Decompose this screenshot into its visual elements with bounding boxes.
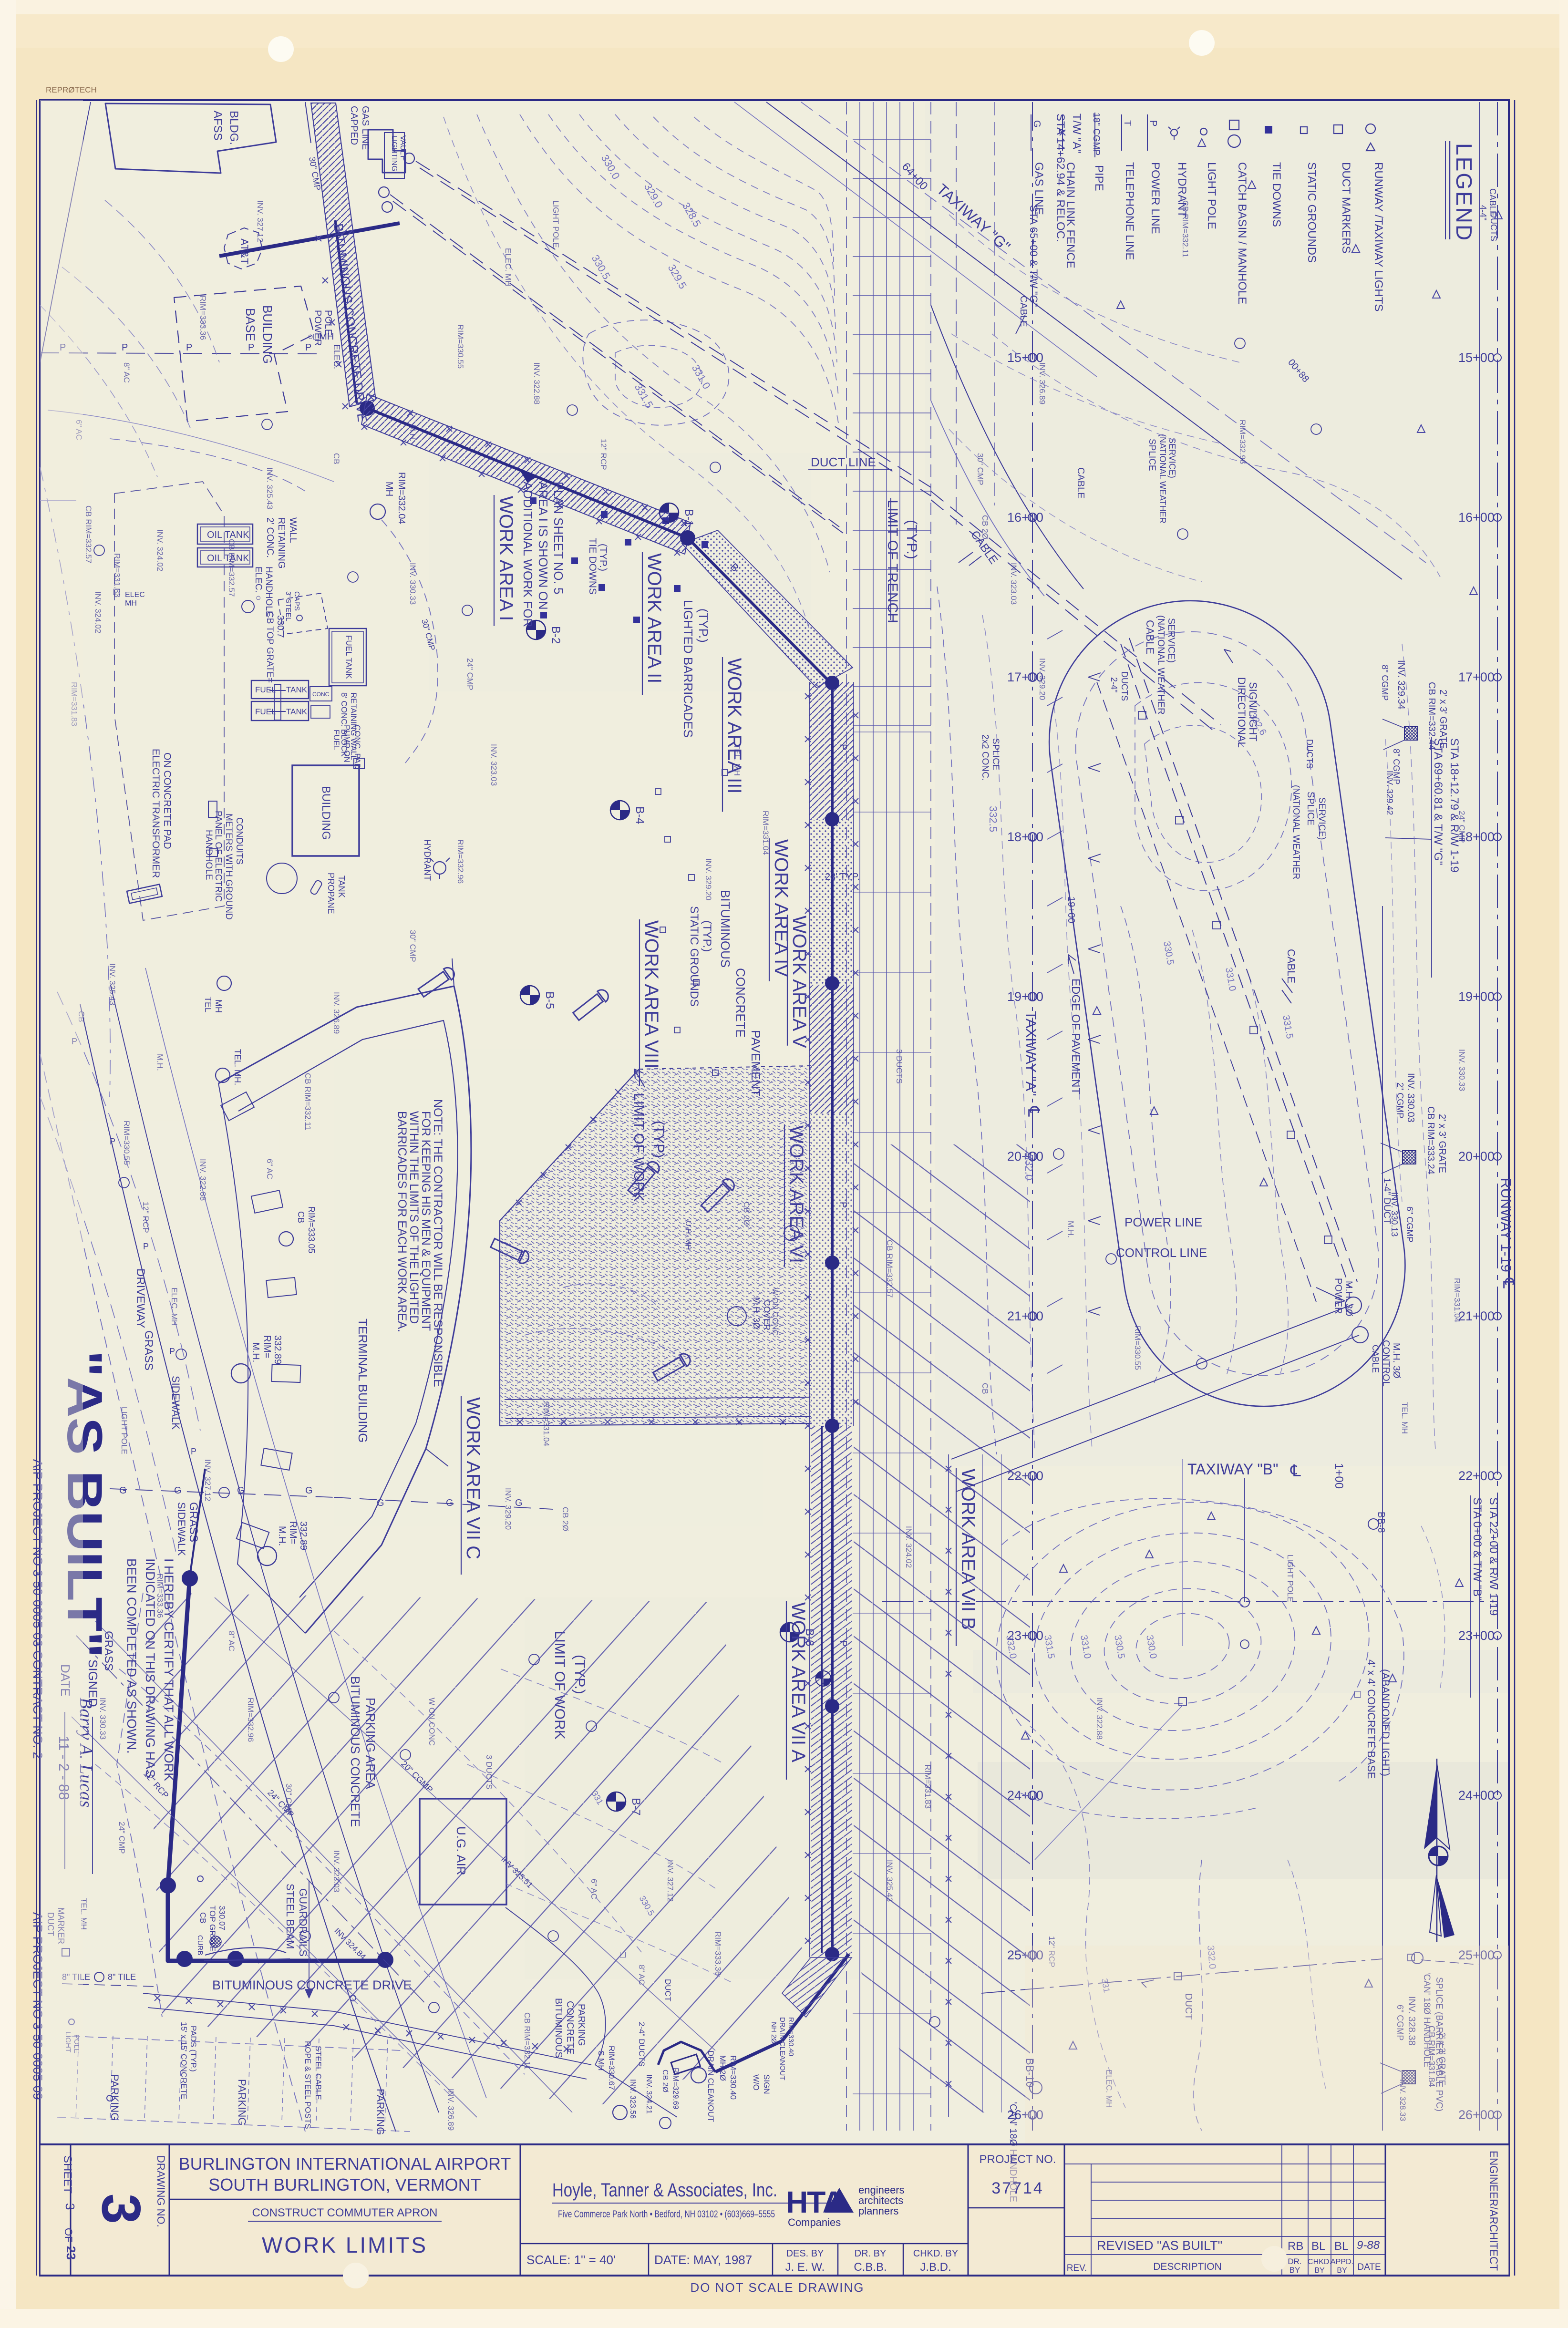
svg-text:CABLE: CABLE bbox=[1371, 1345, 1380, 1373]
svg-text:(TYP): (TYP) bbox=[651, 1121, 667, 1158]
svg-text:19+00: 19+00 bbox=[1007, 989, 1043, 1004]
svg-text:DRAIN CLEANOUT: DRAIN CLEANOUT bbox=[706, 2050, 715, 2122]
svg-text:DUCT: DUCT bbox=[663, 1979, 672, 2001]
svg-text:2' x 3' GRATE: 2' x 3' GRATE bbox=[1438, 690, 1448, 749]
svg-text:BITUMINOUS CONCRETE: BITUMINOUS CONCRETE bbox=[348, 1676, 362, 1827]
svg-text:6" CGMP: 6" CGMP bbox=[1405, 1206, 1414, 1242]
svg-text:(NATIONAL WEATHER: (NATIONAL WEATHER bbox=[1155, 615, 1166, 715]
svg-text:BEEN COMPLETED AS SHOWN.: BEEN COMPLETED AS SHOWN. bbox=[124, 1558, 139, 1754]
svg-text:INV. 326.89: INV. 326.89 bbox=[446, 2089, 455, 2131]
svg-text:POWER: POWER bbox=[312, 310, 323, 346]
svg-text:GAS LINE: GAS LINE bbox=[360, 106, 371, 150]
svg-text:WORK AREA VII C: WORK AREA VII C bbox=[463, 1397, 484, 1559]
svg-text:W/O: W/O bbox=[752, 2074, 761, 2091]
svg-text:Five Commerce Park North • Bed: Five Commerce Park North • Bedford, NH 0… bbox=[558, 2209, 775, 2220]
svg-text:GUARDRAILS: GUARDRAILS bbox=[297, 1888, 309, 1957]
svg-text:ON CONCRETE PAD: ON CONCRETE PAD bbox=[162, 752, 173, 849]
svg-text:8" AC: 8" AC bbox=[122, 362, 131, 383]
svg-text:CONDUITS: CONDUITS bbox=[234, 817, 244, 865]
svg-text:WORK AREA VIII: WORK AREA VIII bbox=[641, 920, 662, 1069]
svg-text:CB: CB bbox=[198, 1912, 207, 1924]
svg-text:332.89: 332.89 bbox=[272, 1335, 283, 1364]
svg-text:B-4: B-4 bbox=[633, 806, 646, 824]
svg-text:DUCTS: DUCTS bbox=[1305, 739, 1314, 769]
svg-text:18+00: 18+00 bbox=[1007, 830, 1043, 844]
svg-text:CONC. PAD: CONC. PAD bbox=[353, 725, 362, 769]
svg-text:CB 2Ø: CB 2Ø bbox=[661, 2070, 669, 2092]
svg-text:DR. BY: DR. BY bbox=[855, 2248, 887, 2259]
svg-text:24" CMP: 24" CMP bbox=[465, 658, 475, 690]
svg-text:TEL. MH: TEL. MH bbox=[1400, 1402, 1409, 1434]
svg-text:BASE: BASE bbox=[243, 308, 258, 341]
svg-text:INV. 329.20: INV. 329.20 bbox=[504, 1488, 513, 1530]
svg-text:37714: 37714 bbox=[991, 2179, 1044, 2197]
svg-text:STATIC GROUNDS: STATIC GROUNDS bbox=[688, 906, 701, 1007]
svg-text:WORK AREA I: WORK AREA I bbox=[495, 496, 516, 621]
svg-text:30" CMP: 30" CMP bbox=[976, 453, 985, 485]
svg-text:RETAINING: RETAINING bbox=[276, 517, 287, 568]
svg-text:INV. 327.12: INV. 327.12 bbox=[256, 200, 265, 242]
svg-text:BARRICADES FOR EACH WORK AREA.: BARRICADES FOR EACH WORK AREA. bbox=[395, 1111, 409, 1332]
svg-text:PADS (TYP.): PADS (TYP.) bbox=[189, 2026, 198, 2072]
svg-text:LIGHT POLE: LIGHT POLE bbox=[551, 200, 560, 248]
svg-text:SERVICE): SERVICE) bbox=[1167, 438, 1177, 478]
svg-text:CABLE: CABLE bbox=[1018, 296, 1029, 327]
svg-text:RIM=330.40: RIM=330.40 bbox=[729, 2055, 738, 2100]
svg-text:P: P bbox=[838, 744, 848, 750]
svg-text:M.H. 3Ø: M.H. 3Ø bbox=[1343, 1281, 1354, 1316]
svg-text:RIM=330.55: RIM=330.55 bbox=[122, 1121, 131, 1165]
svg-text:19+00: 19+00 bbox=[1458, 989, 1495, 1004]
svg-text:CB 2Ø: CB 2Ø bbox=[561, 1507, 570, 1531]
svg-text:CHKD. BY: CHKD. BY bbox=[913, 2248, 958, 2259]
svg-text:POWER LINE: POWER LINE bbox=[1124, 1215, 1202, 1229]
svg-text:CONCRETE: CONCRETE bbox=[565, 2001, 575, 2054]
svg-text:CB RIM=332.44: CB RIM=332.44 bbox=[1426, 682, 1437, 750]
svg-text:CB RIM=332.57: CB RIM=332.57 bbox=[885, 1240, 894, 1298]
svg-text:P: P bbox=[305, 342, 311, 353]
svg-text:INV. 323.56: INV. 323.56 bbox=[629, 2079, 637, 2119]
svg-text:CB: CB bbox=[332, 453, 341, 464]
svg-text:2' CONC.: 2' CONC. bbox=[265, 517, 275, 558]
svg-text:CONSTRUCT COMMUTER APRON: CONSTRUCT COMMUTER APRON bbox=[252, 2206, 438, 2219]
svg-text:CB RIM=332.11: CB RIM=332.11 bbox=[303, 1073, 312, 1130]
svg-text:8" CGMP: 8" CGMP bbox=[1392, 749, 1401, 784]
svg-text:PROJECT NO.: PROJECT NO. bbox=[980, 2153, 1056, 2166]
svg-text:REVISED "AS BUILT": REVISED "AS BUILT" bbox=[1097, 2238, 1222, 2253]
svg-text:STA 22+00 & R/W 1-19: STA 22+00 & R/W 1-19 bbox=[1487, 1497, 1500, 1616]
svg-text:12" RCP: 12" RCP bbox=[141, 1202, 150, 1233]
svg-text:G: G bbox=[377, 1498, 384, 1508]
svg-text:8" AC: 8" AC bbox=[227, 1631, 236, 1651]
svg-text:AREA I IS SHOWN ON: AREA I IS SHOWN ON bbox=[536, 482, 550, 610]
svg-text:STA 0+00 & T/W "B": STA 0+00 & T/W "B" bbox=[1471, 1497, 1484, 1601]
svg-text:SPLICE: SPLICE bbox=[990, 738, 1001, 771]
svg-text:330.07: 330.07 bbox=[217, 1906, 227, 1930]
svg-text:P: P bbox=[169, 1347, 175, 1356]
svg-text:HANDHOLE: HANDHOLE bbox=[204, 830, 214, 880]
svg-text:CB: CB bbox=[296, 1211, 306, 1223]
svg-text:SOUTH BURLINGTON, VERMONT: SOUTH BURLINGTON, VERMONT bbox=[208, 2175, 481, 2194]
svg-text:RIM=333.36: RIM=333.36 bbox=[198, 296, 207, 340]
svg-text:INV. 322.88: INV. 322.88 bbox=[532, 362, 541, 404]
svg-text:℄: ℄ bbox=[1290, 1462, 1301, 1480]
svg-text:RIM=331.04: RIM=331.04 bbox=[1453, 1278, 1462, 1322]
svg-text:G: G bbox=[515, 1498, 523, 1508]
svg-text:TANK: TANK bbox=[286, 707, 308, 716]
svg-text:STA 69+60.81 & T/W "G": STA 69+60.81 & T/W "G" bbox=[1432, 738, 1444, 865]
svg-text:PIPE: PIPE bbox=[1093, 165, 1105, 191]
svg-text:CB RIM=332.57: CB RIM=332.57 bbox=[84, 505, 93, 563]
svg-text:CAPPED: CAPPED bbox=[349, 106, 359, 145]
svg-text:23: 23 bbox=[64, 2246, 78, 2260]
svg-text:INV. 323.03: INV. 323.03 bbox=[489, 744, 498, 786]
svg-text:PARKING: PARKING bbox=[576, 2004, 587, 2046]
svg-text:TANK: TANK bbox=[337, 876, 346, 898]
svg-text:DESCRIPTION: DESCRIPTION bbox=[1153, 2261, 1222, 2272]
svg-text:CONC: CONC bbox=[312, 691, 330, 698]
svg-text:FUEL TANK: FUEL TANK bbox=[344, 635, 353, 679]
svg-text:LIMIT OF TRENCH: LIMIT OF TRENCH bbox=[885, 500, 900, 623]
svg-text:RIM=333.05: RIM=333.05 bbox=[307, 1206, 316, 1254]
svg-text:RUNWAY /TAXIWAY LIGHTS: RUNWAY /TAXIWAY LIGHTS bbox=[1372, 162, 1385, 311]
svg-text:TIE DOWNS: TIE DOWNS bbox=[587, 538, 598, 595]
svg-text:PARKING: PARKING bbox=[236, 2079, 248, 2125]
svg-text:MH: MH bbox=[125, 599, 137, 608]
svg-text:BITUMINOUS: BITUMINOUS bbox=[718, 890, 732, 968]
svg-text:TOP GRATE: TOP GRATE bbox=[208, 1906, 217, 1951]
svg-text:CB 2Ø: CB 2Ø bbox=[742, 1202, 751, 1226]
svg-text:M.H. 3Ø: M.H. 3Ø bbox=[752, 1297, 761, 1329]
svg-text:(ABANDONED LIGHT): (ABANDONED LIGHT) bbox=[1380, 1669, 1392, 1776]
svg-text:TIE DOWNS: TIE DOWNS bbox=[1270, 162, 1283, 227]
svg-text:INV. 326.89: INV. 326.89 bbox=[1038, 362, 1047, 404]
svg-text:DIRECTIONAL: DIRECTIONAL bbox=[1236, 677, 1248, 748]
svg-text:G: G bbox=[119, 1485, 127, 1496]
svg-text:BUILDING: BUILDING bbox=[260, 305, 275, 364]
svg-text:RIM=331.04: RIM=331.04 bbox=[761, 811, 770, 855]
svg-text:LIGHT POLE: LIGHT POLE bbox=[120, 1407, 129, 1454]
svg-text:LIGHT POLE: LIGHT POLE bbox=[1205, 162, 1218, 229]
svg-text:P: P bbox=[191, 1447, 196, 1456]
svg-text:T: T bbox=[1122, 120, 1133, 126]
svg-text:ADDITIONAL WORK FOR: ADDITIONAL WORK FOR bbox=[521, 482, 535, 627]
svg-text:BLDG.: BLDG. bbox=[227, 111, 240, 145]
svg-text:INV. 323.03: INV. 323.03 bbox=[1009, 563, 1018, 605]
svg-text:G: G bbox=[237, 1485, 245, 1496]
svg-text:CONTROL LINE: CONTROL LINE bbox=[1116, 1246, 1207, 1260]
svg-text:330.7: 330.7 bbox=[275, 615, 285, 638]
svg-text:ENGINEER/ARCHITECT: ENGINEER/ARCHITECT bbox=[1487, 2151, 1500, 2271]
svg-text:3 DUCTS: 3 DUCTS bbox=[895, 1049, 904, 1084]
svg-text:PROPANE: PROPANE bbox=[326, 873, 336, 914]
svg-text:M.H.: M.H. bbox=[1066, 1221, 1075, 1238]
svg-text:SHEET: SHEET bbox=[61, 2155, 74, 2194]
svg-text:4' x 4' CONCRETE BASE: 4' x 4' CONCRETE BASE bbox=[1365, 1659, 1377, 1779]
svg-text:P: P bbox=[122, 342, 128, 353]
svg-text:ROPE & STEEL POSTS: ROPE & STEEL POSTS bbox=[303, 2041, 312, 2129]
svg-text:30" CMP: 30" CMP bbox=[408, 930, 417, 962]
svg-text:M.H.: M.H. bbox=[155, 1054, 165, 1071]
svg-text:RIM=331.04: RIM=331.04 bbox=[542, 1402, 551, 1446]
svg-text:8" TILE: 8" TILE bbox=[108, 1972, 136, 1982]
svg-text:332.5: 332.5 bbox=[987, 806, 999, 832]
svg-text:MH: MH bbox=[214, 999, 223, 1013]
svg-text:G: G bbox=[446, 1498, 454, 1508]
svg-text:MH: MH bbox=[384, 482, 394, 496]
svg-text:15+00: 15+00 bbox=[1458, 350, 1495, 365]
svg-text:GRASS: GRASS bbox=[142, 1330, 155, 1370]
svg-text:STA 18+12.79 & R/W 1-19: STA 18+12.79 & R/W 1-19 bbox=[1448, 738, 1461, 873]
svg-text:J. E. W.: J. E. W. bbox=[785, 2261, 825, 2274]
svg-text:ELEC. MH: ELEC. MH bbox=[504, 248, 513, 286]
svg-text:RUNWAY 1-19: RUNWAY 1-19 bbox=[1498, 1178, 1514, 1272]
svg-text:STATIC GROUNDS: STATIC GROUNDS bbox=[1305, 162, 1318, 263]
svg-text:4-4": 4-4" bbox=[1478, 205, 1488, 220]
svg-text:FOR KEEPING HIS MEN & EQUIPMEN: FOR KEEPING HIS MEN & EQUIPMENT bbox=[419, 1111, 433, 1331]
svg-text:STA 14+62.94 & RELOC.: STA 14+62.94 & RELOC. bbox=[1054, 113, 1067, 242]
svg-text:METERS WITH GROUND: METERS WITH GROUND bbox=[224, 814, 234, 920]
svg-text:TEL. MH: TEL. MH bbox=[732, 744, 742, 776]
svg-text:RIM=331.83: RIM=331.83 bbox=[923, 1764, 932, 1809]
svg-text:AT&T: AT&T bbox=[238, 238, 250, 265]
svg-text:CABLE: CABLE bbox=[1285, 949, 1297, 983]
svg-text:I HEREBY CERTIFY THAT ALL WORK: I HEREBY CERTIFY THAT ALL WORK bbox=[162, 1558, 176, 1781]
svg-text:SIGN: SIGN bbox=[762, 2074, 771, 2094]
svg-text:12" RCP: 12" RCP bbox=[599, 439, 608, 470]
svg-text:ELEC: ELEC bbox=[125, 591, 145, 599]
svg-text:3: 3 bbox=[63, 2203, 77, 2210]
svg-text:P: P bbox=[248, 342, 254, 353]
svg-text:Companies: Companies bbox=[788, 2216, 841, 2228]
svg-text:(NATIONAL WEATHER: (NATIONAL WEATHER bbox=[1158, 434, 1167, 524]
svg-text:INV. 326.89: INV. 326.89 bbox=[332, 992, 341, 1034]
svg-text:3: 3 bbox=[91, 2194, 152, 2224]
svg-text:23' TYP.: 23' TYP. bbox=[825, 872, 860, 882]
svg-text:6" AC: 6" AC bbox=[265, 1159, 274, 1179]
svg-text:RIM=330.40: RIM=330.40 bbox=[787, 2017, 795, 2056]
svg-text:CB RIM=333.24: CB RIM=333.24 bbox=[1425, 1106, 1436, 1174]
svg-text:2" CGMP: 2" CGMP bbox=[1395, 1082, 1405, 1118]
svg-text:CB 2Ø: CB 2Ø bbox=[980, 515, 990, 539]
svg-text:℄: ℄ bbox=[1499, 1277, 1517, 1288]
svg-text:STA 65+00 & T/W "G": STA 65+00 & T/W "G" bbox=[1028, 205, 1040, 307]
svg-text:G: G bbox=[174, 1485, 182, 1496]
svg-text:INV. 324.02: INV. 324.02 bbox=[904, 1526, 913, 1568]
svg-text:T/W "A": T/W "A" bbox=[1070, 113, 1083, 154]
svg-text:REV.: REV. bbox=[1067, 2263, 1087, 2273]
svg-text:(TYP.): (TYP.) bbox=[904, 520, 919, 559]
svg-text:BL: BL bbox=[1311, 2240, 1325, 2253]
svg-text:8" CGMP: 8" CGMP bbox=[1380, 665, 1390, 700]
svg-text:RIM=332.96: RIM=332.96 bbox=[1238, 420, 1247, 464]
svg-text:M.H.: M.H. bbox=[277, 1526, 287, 1546]
svg-text:DUCT LINE: DUCT LINE bbox=[811, 455, 876, 469]
svg-text:15' x 15' CONCRETE: 15' x 15' CONCRETE bbox=[179, 2022, 188, 2099]
svg-text:RIM=332.04: RIM=332.04 bbox=[396, 472, 407, 525]
svg-text:RIM=331.83: RIM=331.83 bbox=[113, 553, 122, 597]
svg-text:DUCTS: DUCTS bbox=[1489, 212, 1498, 241]
svg-text:INV. 330.03: INV. 330.03 bbox=[1405, 1073, 1416, 1123]
svg-text:APPD.: APPD. bbox=[1331, 2258, 1353, 2266]
svg-text:BY: BY bbox=[1337, 2266, 1347, 2275]
svg-text:3 DUCTS: 3 DUCTS bbox=[485, 1755, 494, 1790]
svg-text:P: P bbox=[838, 1640, 848, 1647]
svg-text:2-4" DUCTS: 2-4" DUCTS bbox=[637, 2022, 646, 2067]
svg-text:CB RIM=332.57: CB RIM=332.57 bbox=[227, 539, 236, 597]
svg-text:INV. 322.88: INV. 322.88 bbox=[198, 1159, 207, 1201]
svg-text:□: □ bbox=[620, 1949, 626, 1960]
svg-text:INDICATED ON THIS DRAWING HAS: INDICATED ON THIS DRAWING HAS bbox=[143, 1558, 157, 1778]
svg-text:HYDRANT: HYDRANT bbox=[423, 839, 432, 881]
svg-text:CB RIM=332.11: CB RIM=332.11 bbox=[1181, 200, 1190, 258]
svg-text:INV. 329.20: INV. 329.20 bbox=[704, 858, 713, 900]
svg-text:INV. 324.21: INV. 324.21 bbox=[645, 2074, 653, 2114]
svg-text:RIM=332.96: RIM=332.96 bbox=[456, 839, 465, 884]
svg-text:PARKING: PARKING bbox=[374, 2089, 386, 2135]
svg-text:DUCT MARKERS: DUCT MARKERS bbox=[1340, 162, 1352, 254]
svg-text:23+00: 23+00 bbox=[1458, 1628, 1495, 1643]
svg-text:WORK LIMITS: WORK LIMITS bbox=[262, 2233, 428, 2257]
svg-text:2' x 3' GRATE: 2' x 3' GRATE bbox=[1437, 1114, 1447, 1173]
svg-text:DO NOT SCALE DRAWING: DO NOT SCALE DRAWING bbox=[690, 2280, 864, 2295]
svg-text:BUILDING: BUILDING bbox=[320, 786, 332, 840]
svg-text:INV. 330.33: INV. 330.33 bbox=[408, 563, 417, 605]
svg-text:LIGHTING: LIGHTING bbox=[390, 135, 398, 172]
svg-text:17+00: 17+00 bbox=[1458, 670, 1495, 684]
svg-text:W ON CONC: W ON CONC bbox=[771, 1288, 780, 1336]
svg-text:LEGEND: LEGEND bbox=[1452, 143, 1476, 242]
svg-text:RIM=330.67: RIM=330.67 bbox=[607, 2046, 616, 2090]
svg-text:AFSS: AFSS bbox=[211, 111, 224, 141]
svg-text:B-5: B-5 bbox=[543, 991, 556, 1009]
svg-text:RIM=: RIM= bbox=[262, 1335, 272, 1358]
svg-text:PUMP ON: PUMP ON bbox=[342, 725, 351, 762]
svg-text:24+00: 24+00 bbox=[1458, 1788, 1495, 1803]
svg-text:CB: CB bbox=[980, 1383, 990, 1394]
svg-text:MH 2Ø: MH 2Ø bbox=[718, 2055, 727, 2081]
svg-text:WALL: WALL bbox=[288, 517, 298, 543]
svg-text:TAXIWAY "B": TAXIWAY "B" bbox=[1187, 1461, 1278, 1478]
svg-text:WORK AREA II: WORK AREA II bbox=[644, 553, 665, 683]
svg-text:DR.: DR. bbox=[1288, 2257, 1301, 2266]
svg-text:DRAIN CLEANOUT: DRAIN CLEANOUT bbox=[778, 2017, 786, 2081]
svg-text:DATE: MAY, 1987: DATE: MAY, 1987 bbox=[654, 2253, 752, 2267]
svg-text:BB-8: BB-8 bbox=[1376, 1512, 1386, 1533]
svg-text:CONCRETE: CONCRETE bbox=[733, 968, 748, 1038]
svg-text:8" AC: 8" AC bbox=[637, 1965, 646, 1985]
svg-text:WORK AREA IV: WORK AREA IV bbox=[771, 839, 792, 977]
svg-text:EDGE OF PAVEMENT: EDGE OF PAVEMENT bbox=[1069, 979, 1082, 1094]
svg-text:P: P bbox=[143, 1242, 149, 1251]
svg-text:(NATIONAL WEATHER: (NATIONAL WEATHER bbox=[1291, 785, 1301, 879]
svg-text:INV. 329.34: INV. 329.34 bbox=[1396, 660, 1406, 710]
svg-text:CAPS: CAPS bbox=[293, 591, 301, 611]
svg-text:P: P bbox=[1148, 120, 1158, 126]
svg-text:B-2: B-2 bbox=[549, 626, 562, 644]
svg-text:1+00: 1+00 bbox=[1332, 1463, 1345, 1489]
svg-text:W ON CONC: W ON CONC bbox=[427, 1698, 436, 1746]
svg-text:BL: BL bbox=[1334, 2240, 1348, 2253]
svg-text:INV. 325.43: INV. 325.43 bbox=[108, 963, 117, 1005]
svg-text:INV. 325.43: INV. 325.43 bbox=[265, 467, 274, 509]
svg-text:BY: BY bbox=[1289, 2266, 1300, 2275]
svg-text:G: G bbox=[1032, 120, 1042, 128]
svg-text:INV. 327.12: INV. 327.12 bbox=[666, 1860, 675, 1902]
svg-text:M.H.: M.H. bbox=[250, 1342, 261, 1362]
svg-text:SERVICE): SERVICE) bbox=[1317, 797, 1327, 840]
svg-text:SIDEWALK: SIDEWALK bbox=[175, 1502, 187, 1556]
svg-text:DRAWING NO.: DRAWING NO. bbox=[155, 2155, 167, 2227]
svg-text:DES. BY: DES. BY bbox=[786, 2248, 824, 2259]
svg-text:INV. 322.88: INV. 322.88 bbox=[1095, 1698, 1104, 1740]
svg-text:TEL. MH.: TEL. MH. bbox=[233, 1049, 242, 1085]
svg-text:RIM=330.55: RIM=330.55 bbox=[456, 324, 465, 369]
svg-text:RIM=: RIM= bbox=[288, 1521, 298, 1544]
svg-text:RIM=332.96: RIM=332.96 bbox=[246, 1698, 255, 1742]
svg-text:LIGHTED BARRICADES: LIGHTED BARRICADES bbox=[681, 600, 695, 738]
svg-text:WITHIN THE LIMITS OF THE LIGHT: WITHIN THE LIMITS OF THE LIGHTED bbox=[407, 1111, 421, 1324]
svg-text:FUEL: FUEL bbox=[332, 730, 341, 750]
svg-text:24" CMP: 24" CMP bbox=[1457, 811, 1466, 843]
svg-text:INV. 324.02: INV. 324.02 bbox=[93, 591, 103, 633]
svg-text:FUEL: FUEL bbox=[255, 685, 276, 694]
svg-text:CB TOP GRATE=: CB TOP GRATE= bbox=[265, 611, 275, 683]
svg-text:U.G. AIR: U.G. AIR bbox=[454, 1826, 468, 1875]
svg-text:TERMINAL BUILDING: TERMINAL BUILDING bbox=[356, 1319, 370, 1443]
svg-text:CURB: CURB bbox=[196, 1935, 204, 1956]
svg-text:CABLE: CABLE bbox=[1144, 620, 1156, 654]
svg-text:30" CMP: 30" CMP bbox=[284, 1783, 293, 1815]
svg-text:POWER LINE: POWER LINE bbox=[1149, 162, 1162, 234]
svg-text:19+00: 19+00 bbox=[1066, 896, 1076, 923]
svg-text:INV. 330.13: INV. 330.13 bbox=[1390, 1192, 1399, 1236]
svg-text:16+00: 16+00 bbox=[1458, 510, 1495, 525]
svg-text:21+00: 21+00 bbox=[1458, 1309, 1495, 1323]
svg-text:16+00: 16+00 bbox=[1007, 510, 1043, 525]
svg-text:STEEL CABLE: STEEL CABLE bbox=[314, 2046, 323, 2100]
svg-text:ELEC. MH: ELEC. MH bbox=[170, 1288, 179, 1326]
svg-text:S.MH: S.MH bbox=[597, 2050, 606, 2071]
svg-text:SCALE: 1" = 40': SCALE: 1" = 40' bbox=[526, 2253, 616, 2267]
svg-text:TANK: TANK bbox=[286, 685, 308, 694]
svg-text:P: P bbox=[110, 1137, 115, 1146]
svg-text:24" CMP: 24" CMP bbox=[117, 1822, 126, 1854]
svg-text:18" CGMP: 18" CGMP bbox=[1091, 113, 1101, 155]
svg-text:BITUMINOUS: BITUMINOUS bbox=[553, 1998, 564, 2058]
svg-text:CHKD.: CHKD. bbox=[1308, 2258, 1331, 2266]
svg-text:M.H.: M.H. bbox=[408, 424, 417, 442]
svg-text:22+00: 22+00 bbox=[1458, 1469, 1495, 1483]
svg-text:(TYP.): (TYP.) bbox=[598, 544, 609, 571]
svg-text:SIDEWALK: SIDEWALK bbox=[170, 1376, 182, 1430]
svg-text:ELECTRIC TRANSFORMER: ELECTRIC TRANSFORMER bbox=[150, 749, 161, 878]
svg-text:CATCH BASIN / MANHOLE: CATCH BASIN / MANHOLE bbox=[1236, 162, 1248, 304]
svg-text:LIGHT POLE: LIGHT POLE bbox=[1286, 1555, 1295, 1602]
svg-text:PARKING: PARKING bbox=[109, 2074, 121, 2121]
svg-text:DUCTS: DUCTS bbox=[1120, 671, 1129, 701]
svg-text:2x2 CONC.: 2x2 CONC. bbox=[980, 734, 990, 781]
svg-text:INV. 329.20: INV. 329.20 bbox=[1038, 658, 1047, 700]
svg-text:INV. 325.43: INV. 325.43 bbox=[885, 1860, 894, 1902]
svg-text:SIGN/LIGHT: SIGN/LIGHT bbox=[1247, 682, 1259, 742]
svg-text:RIM=330.55: RIM=330.55 bbox=[1133, 1326, 1142, 1370]
svg-text:6" AC: 6" AC bbox=[589, 1879, 598, 1899]
svg-text:planners: planners bbox=[858, 2205, 898, 2217]
svg-text:9-88: 9-88 bbox=[1357, 2239, 1380, 2252]
svg-text:U.H. MH: U.H. MH bbox=[684, 1221, 692, 1250]
svg-text:M.H. 3Ø: M.H. 3Ø bbox=[1391, 1343, 1402, 1378]
